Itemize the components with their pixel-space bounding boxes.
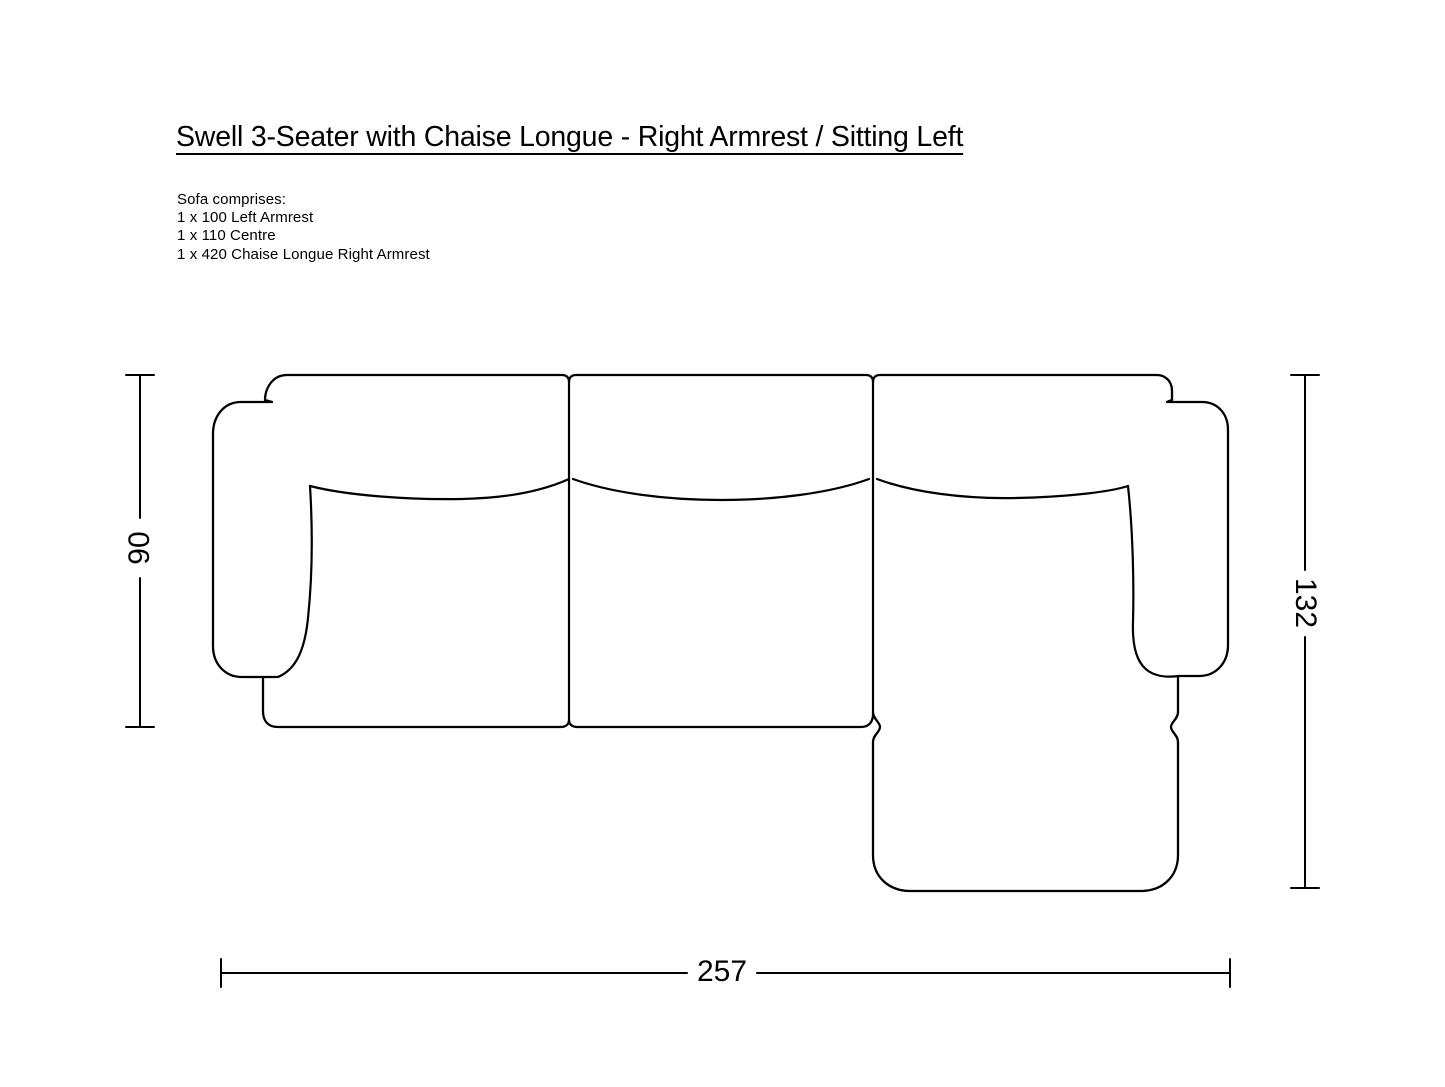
dimension-line-right <box>1291 375 1319 888</box>
dimension-value-total-width: 257 <box>697 955 747 989</box>
dimension-value-chaise-depth: 132 <box>1288 578 1322 628</box>
dimension-value-sofa-depth: 90 <box>123 531 157 564</box>
sofa-top-view-drawing <box>0 0 1445 1087</box>
spec-sheet-page: Swell 3-Seater with Chaise Longue - Righ… <box>0 0 1445 1087</box>
module-seam-lines <box>569 382 873 720</box>
cushion-seam-lines <box>263 479 1178 677</box>
sofa-outline <box>213 375 1228 891</box>
